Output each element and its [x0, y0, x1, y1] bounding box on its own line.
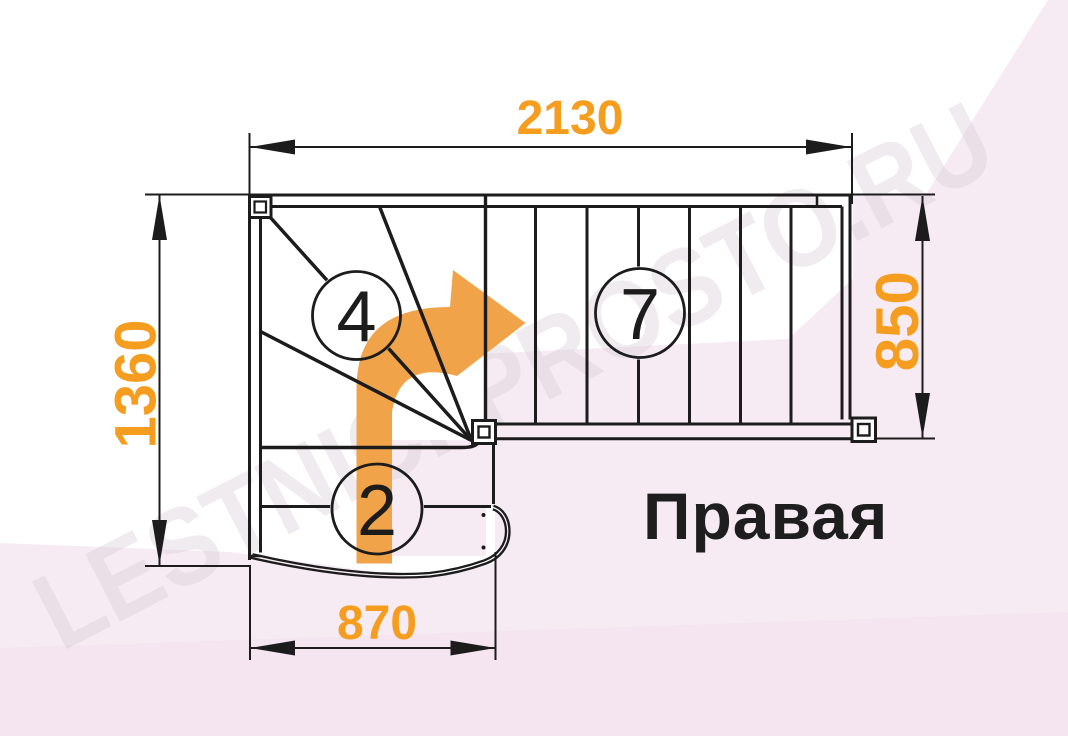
svg-text:2130: 2130	[517, 92, 624, 145]
svg-text:850: 850	[864, 271, 931, 371]
svg-text:4: 4	[336, 278, 376, 358]
svg-text:Правая: Правая	[643, 479, 888, 553]
svg-text:2: 2	[357, 471, 397, 551]
svg-text:7: 7	[620, 275, 660, 355]
svg-text:870: 870	[337, 597, 417, 650]
svg-text:1360: 1360	[103, 319, 168, 448]
